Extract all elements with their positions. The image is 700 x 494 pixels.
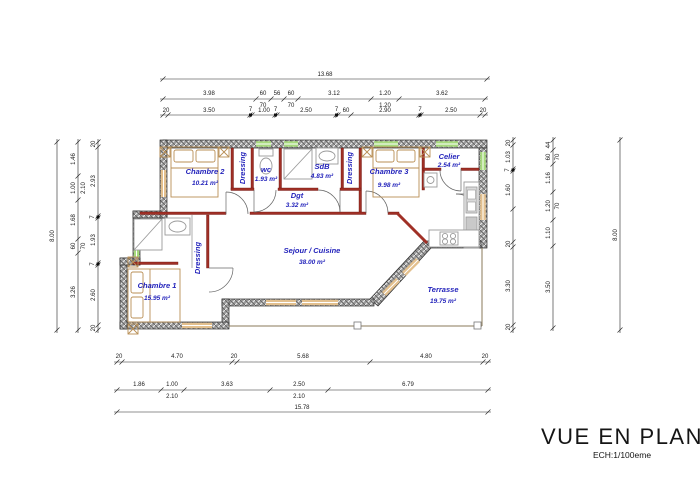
dim: 2.93 (91, 175, 97, 187)
room-label-dressing3: Dressing (193, 242, 202, 275)
dim: 3.30 (506, 280, 512, 292)
dim: 3.50 (546, 281, 552, 293)
dim: 3.62 (436, 91, 448, 97)
dim: 1.20 (379, 91, 391, 97)
dim: 60 (260, 91, 267, 97)
dim: 20 (91, 324, 97, 331)
dim: 20 (163, 108, 170, 114)
shower-icon (284, 149, 312, 179)
dim: 7 (418, 107, 422, 113)
dim: 2.50 (445, 108, 457, 114)
dim: 3.63 (221, 382, 233, 388)
dim: 1.00 (71, 182, 77, 194)
dim: 20 (506, 240, 512, 247)
dim: 60 (546, 153, 552, 160)
dim-right-total: 8.00 (613, 229, 619, 241)
dim: 1.00 (166, 382, 178, 388)
door-dressing3 (209, 268, 233, 292)
room-label-terrasse: Terrasse (428, 285, 459, 294)
stove-icon (440, 232, 458, 245)
dim: 60 (288, 91, 295, 97)
hand-basin-icon (424, 173, 437, 187)
room-label-celier: Celier (439, 152, 461, 161)
dim: 6.79 (402, 382, 414, 388)
terrace-post (474, 322, 481, 329)
dim: 4.70 (171, 354, 183, 360)
dim: 2.60 (91, 289, 97, 301)
dim: 2.90 (379, 108, 391, 114)
dim: 20 (116, 354, 123, 360)
room-label-dressing1: Dressing (238, 152, 247, 185)
dim: 1.60 (506, 184, 512, 196)
dim: 56 (274, 91, 281, 97)
door-wc (254, 190, 276, 212)
dim: 20 (231, 354, 238, 360)
dim: 44 (546, 141, 552, 148)
room-label-chambre1: Chambre 1 (138, 281, 177, 290)
dim: 1.03 (506, 151, 512, 163)
room-area-dgt: 3.32 m² (286, 202, 309, 209)
room-area-sdb: 4.83 m² (310, 173, 334, 180)
dim: 70 (288, 103, 295, 109)
dim: 2.10 (81, 182, 87, 194)
dim: 70 (555, 153, 561, 160)
dim-left-total: 8.00 (50, 230, 56, 242)
dim: 7 (274, 107, 278, 113)
dim: 3.98 (203, 91, 215, 97)
shower-icon (134, 219, 162, 250)
dim: 1.86 (133, 382, 145, 388)
sink-icon (165, 218, 190, 235)
room-label-dgt: Dgt (291, 191, 304, 200)
door-celier (440, 169, 461, 191)
dim: 1.93 (91, 234, 97, 246)
terrace-post (354, 322, 361, 329)
dim: 2.10 (166, 394, 178, 400)
room-label-dressing2: Dressing (345, 152, 354, 185)
room-label-wc: wc (261, 165, 272, 174)
title-block: VUE EN PLAN ECH:1/100eme (541, 424, 700, 460)
room-label-chambre3: Chambre 3 (370, 167, 410, 176)
room-area-terrasse: 19.75 m² (430, 298, 457, 305)
room-area-chambre1: 15.95 m² (144, 295, 171, 302)
drawing-scale: ECH:1/100eme (593, 450, 651, 460)
dim: 7 (90, 262, 96, 266)
dim: 7 (335, 107, 339, 113)
dim: 3.50 (203, 108, 215, 114)
drawing-title: VUE EN PLAN (541, 424, 700, 449)
door-chambre3 (366, 191, 388, 213)
dim: 1.00 (258, 108, 270, 114)
floor-plan-drawing: Chambre 2 10.21 m² Dressing wc 1.93 m² S… (0, 0, 700, 494)
door-sdb (318, 190, 340, 212)
room-area-sejour: 38.00 m² (299, 259, 326, 266)
dim: 1.68 (71, 214, 77, 226)
door-chambre2 (226, 192, 248, 214)
dim: 20 (91, 140, 97, 147)
dim: 20 (480, 108, 487, 114)
dim: 4.80 (420, 354, 432, 360)
dim-top-total: 13.68 (317, 72, 333, 78)
dim: 70 (555, 202, 561, 209)
dim: 20 (506, 323, 512, 330)
dim: 70 (81, 242, 87, 249)
dim: 1.10 (546, 227, 552, 239)
dim: 1.46 (71, 153, 77, 165)
dim: 1.20 (546, 200, 552, 212)
dim: 20 (506, 139, 512, 146)
dim: 2.50 (293, 382, 305, 388)
room-label-sejour: Sejour / Cuisine (284, 246, 341, 255)
room-area-chambre2: 10.21 m² (192, 180, 219, 187)
dim: 2.50 (300, 108, 312, 114)
room-label-sdb: SdB (315, 162, 331, 171)
room-area-wc: 1.93 m² (255, 176, 278, 183)
dim: 2.10 (293, 394, 305, 400)
dim: 60 (343, 108, 350, 114)
floor-plan-page: Chambre 2 10.21 m² Dressing wc 1.93 m² S… (0, 0, 700, 494)
dim: 3.26 (71, 286, 77, 298)
dim-bottom-total: 15.78 (294, 405, 310, 411)
dim: 60 (71, 242, 77, 249)
dim: 5.68 (297, 354, 309, 360)
dim: 3.12 (328, 91, 340, 97)
room-label-chambre2: Chambre 2 (186, 167, 226, 176)
dim: 7 (505, 168, 511, 172)
dim: 1.16 (546, 172, 552, 184)
dim: 7 (90, 215, 96, 219)
room-area-celier: 2.54 m² (437, 162, 461, 169)
room-area-chambre3: 9.98 m² (378, 182, 401, 189)
dim: 7 (249, 107, 253, 113)
dim: 20 (482, 354, 489, 360)
